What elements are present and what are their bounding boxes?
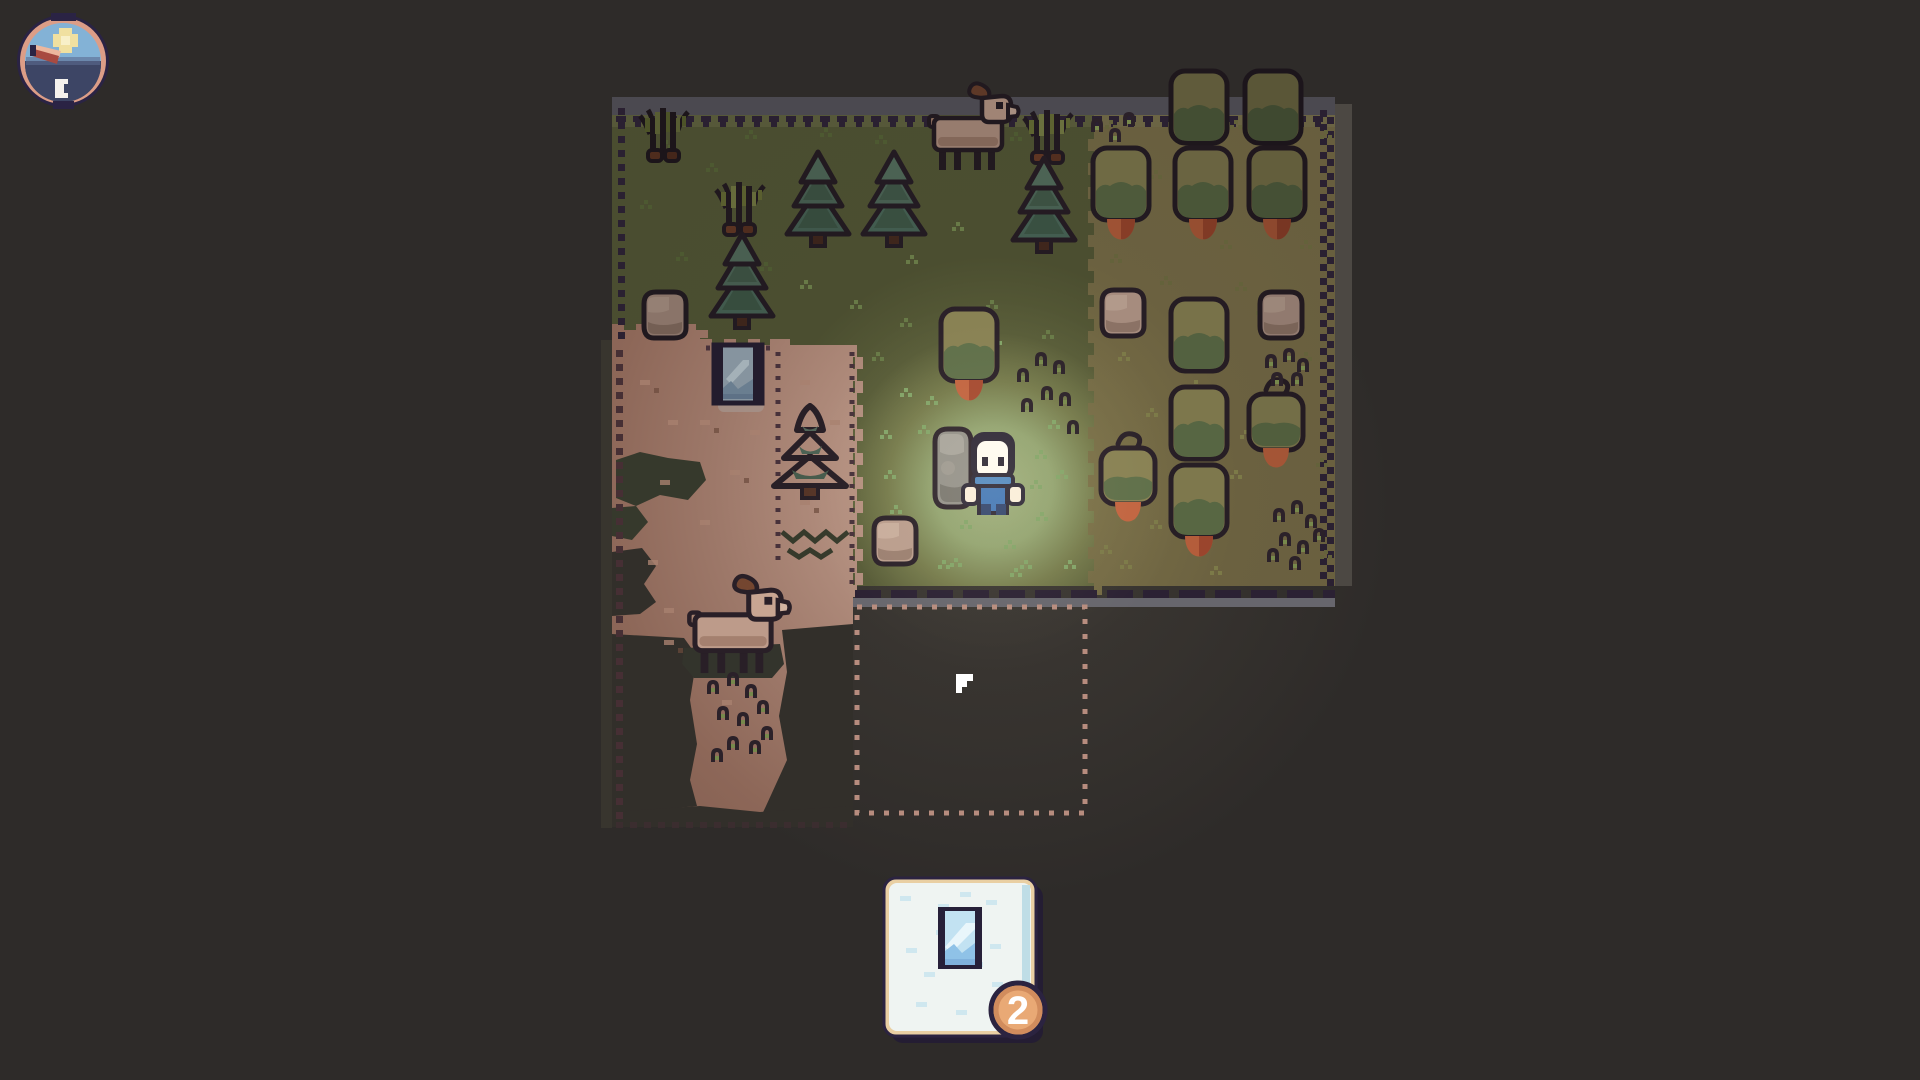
svg-text:2: 2 — [1007, 989, 1029, 1033]
